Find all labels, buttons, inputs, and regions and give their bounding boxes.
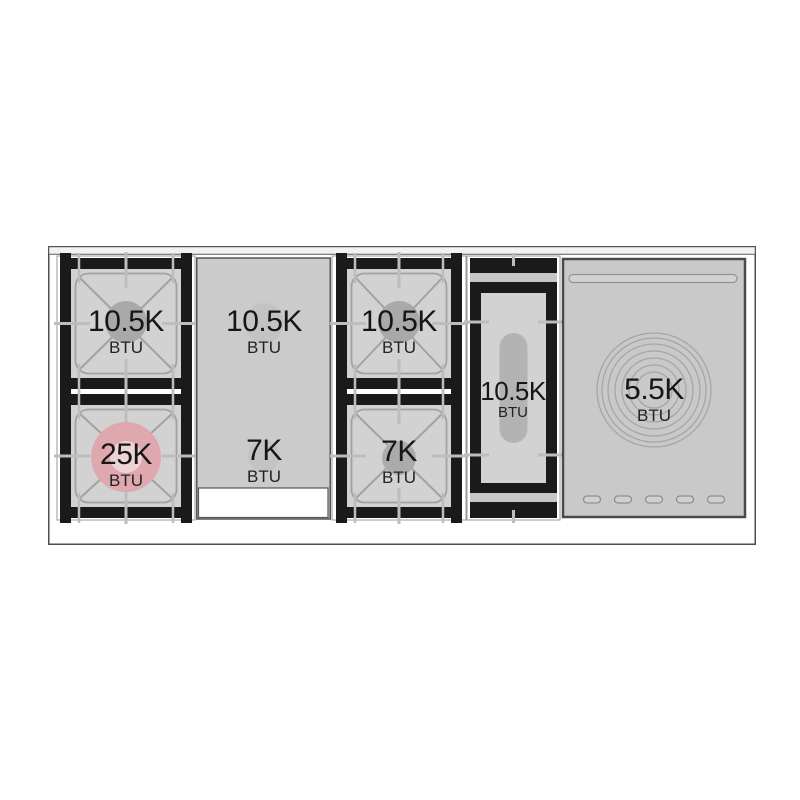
btu-label-griddle-front: 7K BTU [246, 436, 282, 485]
btu-value: 5.5K [624, 375, 684, 405]
btu-value: 10.5K [480, 378, 545, 404]
btu-unit: BTU [381, 469, 417, 486]
btu-label-center-rear: 10.5K BTU [361, 307, 437, 356]
btu-unit: BTU [480, 405, 545, 420]
btu-unit: BTU [361, 339, 437, 356]
btu-label-griddle-rear: 10.5K BTU [226, 307, 302, 356]
btu-unit: BTU [88, 339, 164, 356]
btu-value: 7K [381, 437, 417, 467]
btu-label-left-front: 25K BTU [100, 440, 152, 489]
btu-value: 7K [246, 436, 282, 466]
btu-unit: BTU [624, 407, 684, 424]
cooktop-diagram: 10.5K BTU 25K BTU 10.5K BTU 7K BTU 10.5K… [0, 0, 800, 800]
btu-unit: BTU [246, 468, 282, 485]
btu-unit: BTU [100, 472, 152, 489]
range-top: 10.5K BTU 25K BTU 10.5K BTU 7K BTU 10.5K… [48, 246, 756, 546]
btu-value: 10.5K [361, 307, 437, 337]
btu-value: 10.5K [226, 307, 302, 337]
btu-unit: BTU [226, 339, 302, 356]
griddle-handle [199, 488, 329, 518]
btu-label-center-front: 7K BTU [381, 437, 417, 486]
btu-label-simmer-plate: 5.5K BTU [624, 375, 684, 424]
btu-label-left-rear: 10.5K BTU [88, 307, 164, 356]
btu-value: 25K [100, 440, 152, 470]
back-trim [49, 247, 756, 255]
btu-value: 10.5K [88, 307, 164, 337]
btu-label-oval: 10.5K BTU [480, 378, 545, 420]
panel-back-bar [569, 275, 737, 283]
